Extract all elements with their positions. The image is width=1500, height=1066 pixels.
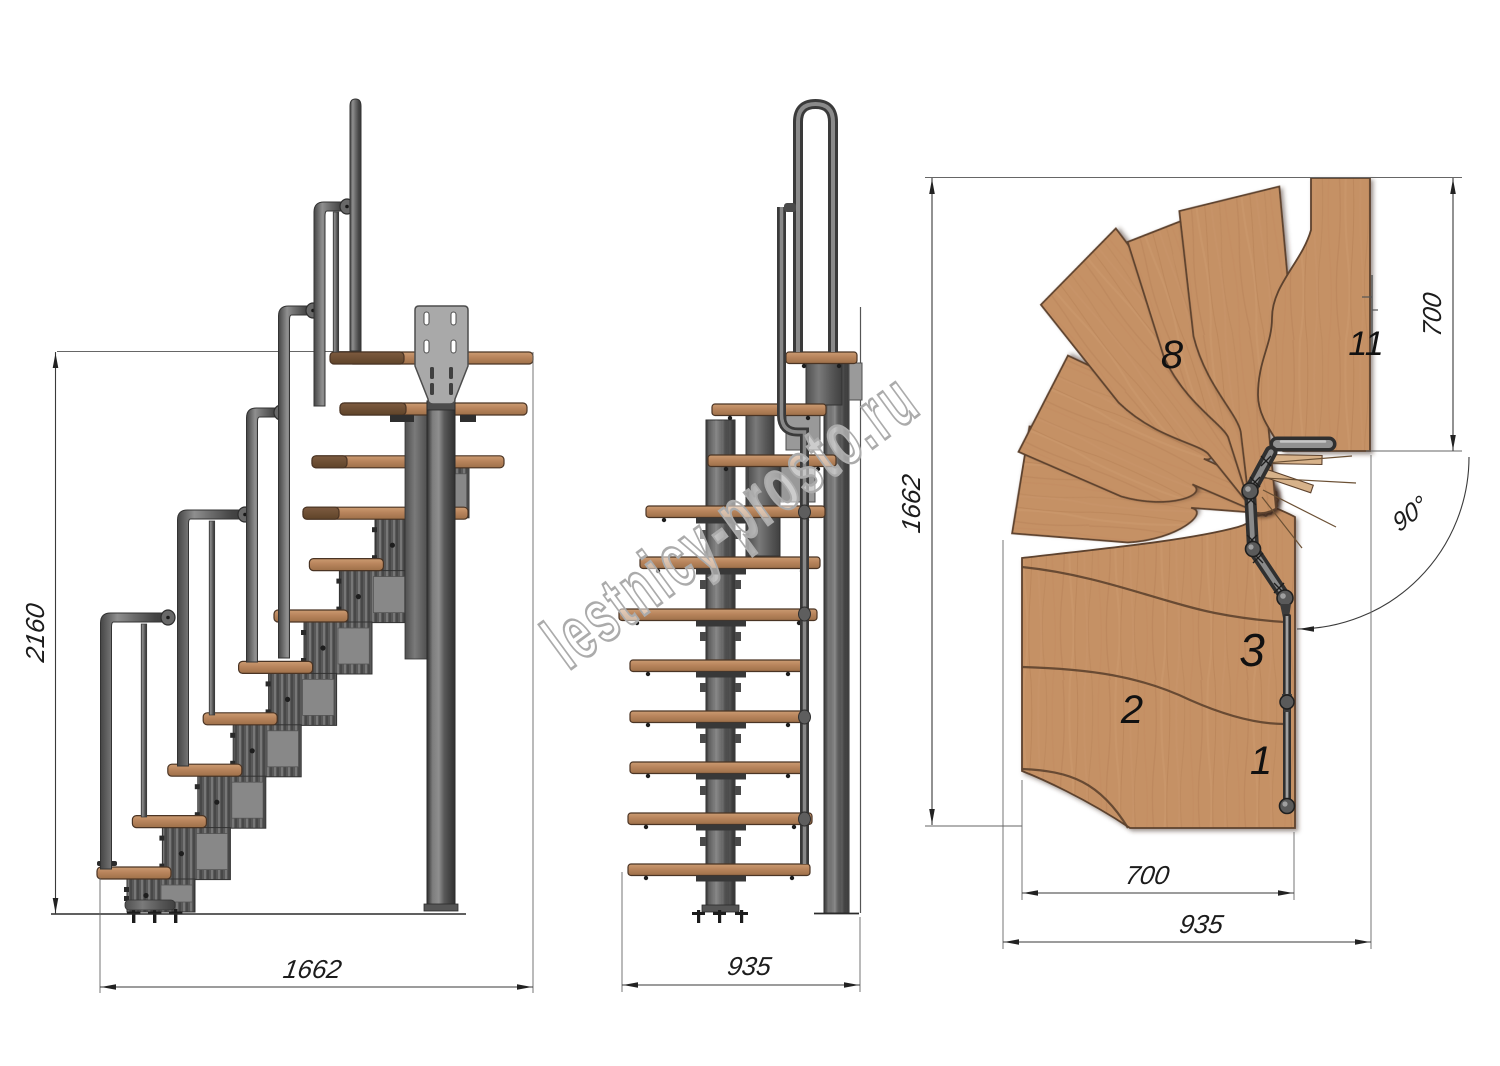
svg-text:1662: 1662 <box>281 954 344 984</box>
svg-text:700: 700 <box>1123 860 1172 890</box>
svg-text:700: 700 <box>1417 290 1447 339</box>
svg-text:3: 3 <box>1239 624 1265 676</box>
svg-text:935: 935 <box>725 951 774 981</box>
svg-text:8: 8 <box>1161 333 1184 377</box>
svg-text:2160: 2160 <box>20 601 50 665</box>
svg-text:2: 2 <box>1120 688 1143 732</box>
svg-text:1: 1 <box>1250 739 1272 783</box>
svg-text:11: 11 <box>1348 325 1383 363</box>
svg-text:935: 935 <box>1177 909 1226 939</box>
svg-text:1662: 1662 <box>896 472 926 535</box>
